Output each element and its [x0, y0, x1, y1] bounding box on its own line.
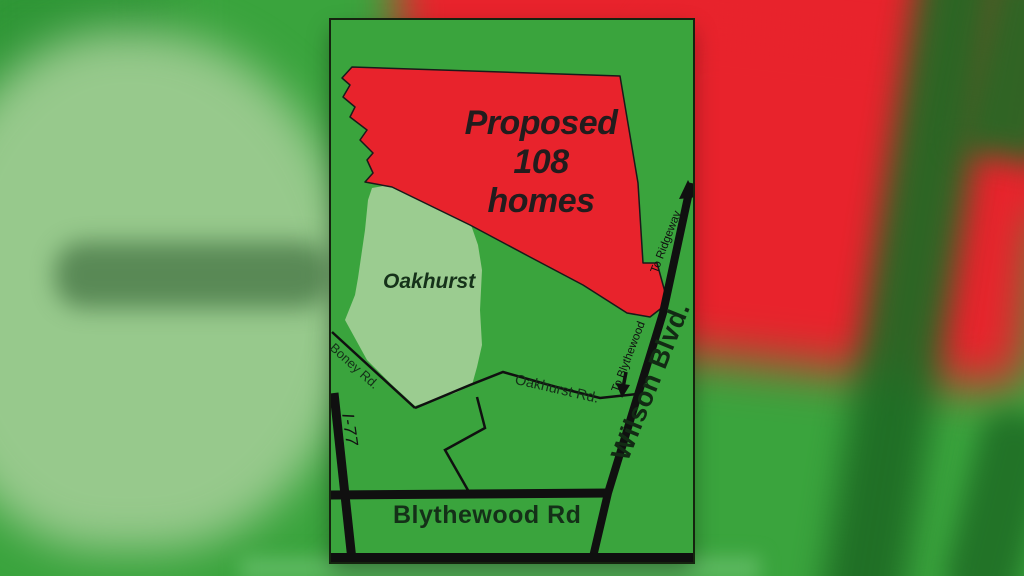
proposed-homes-line3: homes — [441, 182, 641, 221]
proposed-homes-line2: 108 — [441, 143, 641, 182]
blythewood-road-label: Blythewood Rd — [393, 501, 581, 530]
parcel-boundary — [445, 397, 485, 492]
backdrop-blurred-text-smear — [55, 242, 330, 308]
proposed-homes-line1: Proposed — [441, 104, 641, 143]
backdrop-blurred-label-smear — [939, 404, 1024, 576]
bottom-edge-road — [331, 553, 693, 562]
development-map: Proposed 108 homes Oakhurst Boney Rd. I-… — [331, 20, 693, 562]
blythewood-road-line — [331, 493, 610, 495]
proposed-homes-label: Proposed 108 homes — [441, 104, 641, 221]
oakhurst-neighborhood-label: Oakhurst — [383, 270, 475, 294]
